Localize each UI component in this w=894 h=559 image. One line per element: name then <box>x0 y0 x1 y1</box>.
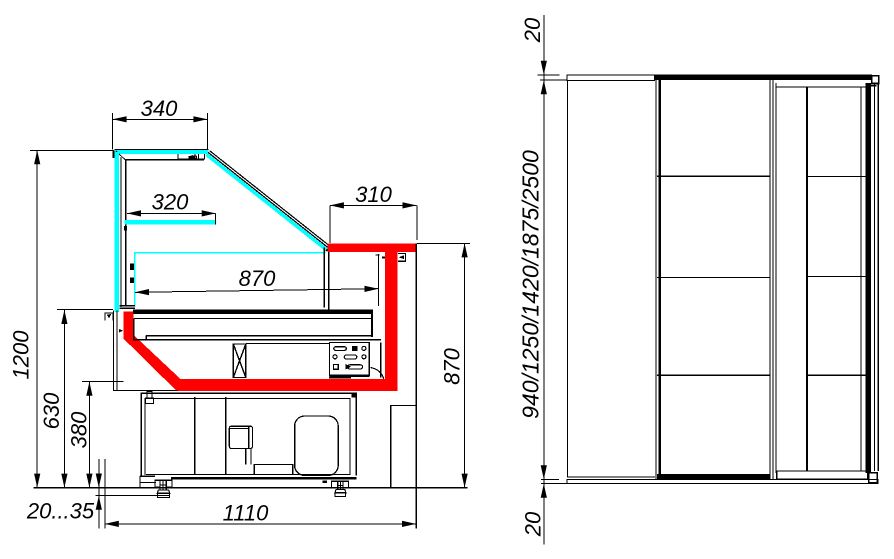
svg-text:1200: 1200 <box>9 330 34 380</box>
svg-text:310: 310 <box>355 182 392 207</box>
svg-text:630: 630 <box>39 392 64 429</box>
svg-text:940/1250/1420/1875/2500: 940/1250/1420/1875/2500 <box>518 150 544 419</box>
svg-text:340: 340 <box>141 96 178 121</box>
svg-text:1110: 1110 <box>223 501 269 526</box>
svg-text:870: 870 <box>440 347 465 384</box>
svg-text:870: 870 <box>239 266 276 291</box>
svg-text:380: 380 <box>67 411 92 448</box>
svg-text:20: 20 <box>520 17 545 43</box>
svg-text:20...35: 20...35 <box>26 499 95 524</box>
svg-text:320: 320 <box>152 190 189 215</box>
svg-text:20: 20 <box>521 511 546 537</box>
